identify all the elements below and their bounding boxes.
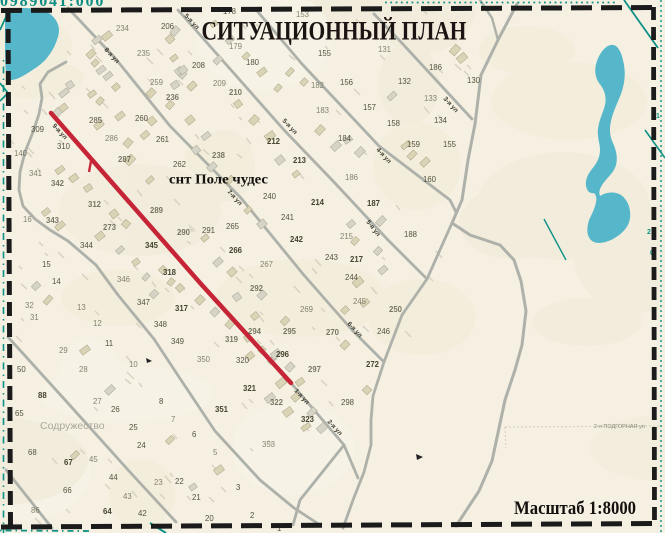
svg-text:23: 23 xyxy=(154,478,163,487)
svg-text:260: 260 xyxy=(135,114,149,123)
svg-text:246: 246 xyxy=(377,327,390,336)
svg-text:321: 321 xyxy=(243,384,257,393)
svg-text:133: 133 xyxy=(424,94,437,103)
svg-text:243: 243 xyxy=(325,253,338,262)
svg-text:341: 341 xyxy=(29,169,42,178)
svg-text:312: 312 xyxy=(88,200,102,209)
svg-text:323: 323 xyxy=(301,415,315,424)
svg-text:242: 242 xyxy=(290,235,304,244)
svg-text:269: 269 xyxy=(300,305,313,314)
svg-text:345: 345 xyxy=(145,241,159,250)
svg-text:214: 214 xyxy=(311,198,325,207)
svg-text:8: 8 xyxy=(159,397,163,406)
svg-text:273: 273 xyxy=(103,223,117,232)
svg-text:285: 285 xyxy=(89,116,103,125)
svg-text:272: 272 xyxy=(366,360,380,369)
svg-text:182: 182 xyxy=(311,81,324,90)
svg-text:СИТУАЦИОННЫЙ ПЛАН: СИТУАЦИОННЫЙ ПЛАН xyxy=(202,17,467,46)
svg-text:206: 206 xyxy=(161,22,174,31)
svg-text:287: 287 xyxy=(118,155,131,164)
svg-text:21: 21 xyxy=(192,493,201,502)
svg-text:64: 64 xyxy=(103,507,112,516)
svg-text:270: 270 xyxy=(326,328,340,337)
svg-text:68: 68 xyxy=(28,448,37,457)
svg-text:24: 24 xyxy=(137,441,146,450)
svg-text:157: 157 xyxy=(363,103,376,112)
svg-text:208: 208 xyxy=(192,61,205,70)
svg-text:3: 3 xyxy=(236,483,240,492)
svg-text:261: 261 xyxy=(156,135,169,144)
svg-text:212: 212 xyxy=(267,137,281,146)
svg-text:318: 318 xyxy=(163,268,177,277)
svg-text:353: 353 xyxy=(262,440,275,449)
svg-text:22: 22 xyxy=(175,477,184,486)
svg-text:27: 27 xyxy=(93,397,102,406)
svg-text:156: 156 xyxy=(340,78,353,87)
svg-text:240: 240 xyxy=(263,192,277,201)
svg-text:14: 14 xyxy=(52,277,61,286)
svg-text:265: 265 xyxy=(226,222,240,231)
svg-text:2-я ПОДГОРНАЯ ул: 2-я ПОДГОРНАЯ ул xyxy=(594,424,645,430)
svg-text:50: 50 xyxy=(17,365,26,374)
svg-text:снт Поле чудес: снт Поле чудес xyxy=(169,172,268,187)
svg-text:187: 187 xyxy=(367,199,380,208)
svg-text:241: 241 xyxy=(281,213,294,222)
svg-text:347: 347 xyxy=(137,298,150,307)
svg-text:245: 245 xyxy=(353,297,367,306)
svg-text:290: 290 xyxy=(177,228,191,237)
svg-text:131: 131 xyxy=(378,45,391,54)
svg-text:88: 88 xyxy=(38,391,47,400)
svg-text:5: 5 xyxy=(213,448,218,457)
svg-text:322: 322 xyxy=(270,398,284,407)
svg-text:160: 160 xyxy=(423,175,437,184)
svg-text:1: 1 xyxy=(656,113,660,120)
svg-text:309: 309 xyxy=(31,125,44,134)
svg-text:215: 215 xyxy=(340,232,354,241)
svg-text:Масштаб 1:8000: Масштаб 1:8000 xyxy=(514,498,636,519)
svg-text:180: 180 xyxy=(246,58,260,67)
svg-text:86: 86 xyxy=(31,506,40,515)
svg-text:295: 295 xyxy=(283,327,297,336)
svg-text:210: 210 xyxy=(229,88,243,97)
svg-text:11: 11 xyxy=(105,339,113,348)
svg-text:286: 286 xyxy=(105,134,118,143)
svg-text:130: 130 xyxy=(467,76,481,85)
svg-text:234: 234 xyxy=(116,24,130,33)
svg-text:16: 16 xyxy=(23,215,32,224)
svg-text:28: 28 xyxy=(79,365,88,374)
svg-text:45: 45 xyxy=(89,455,98,464)
svg-text:159: 159 xyxy=(407,140,420,149)
svg-text:294: 294 xyxy=(248,327,262,336)
svg-text:351: 351 xyxy=(215,405,229,414)
svg-text:250: 250 xyxy=(389,305,403,314)
svg-text:32: 32 xyxy=(25,301,34,310)
svg-text:29: 29 xyxy=(59,346,68,355)
svg-text:317: 317 xyxy=(175,304,188,313)
svg-text:266: 266 xyxy=(229,246,243,255)
svg-text:346: 346 xyxy=(117,275,130,284)
svg-text:20: 20 xyxy=(205,514,214,523)
svg-text:320: 320 xyxy=(236,356,250,365)
svg-text:310: 310 xyxy=(57,142,71,151)
svg-text:134: 134 xyxy=(434,116,448,125)
svg-text:10: 10 xyxy=(129,360,138,369)
svg-text:217: 217 xyxy=(350,255,363,264)
svg-text:344: 344 xyxy=(80,241,94,250)
svg-text:155: 155 xyxy=(318,49,332,58)
svg-text:12: 12 xyxy=(93,319,102,328)
svg-text:15: 15 xyxy=(42,260,51,269)
svg-text:209: 209 xyxy=(213,79,226,88)
svg-text:343: 343 xyxy=(46,216,60,225)
svg-text:66: 66 xyxy=(63,486,72,495)
svg-text:2: 2 xyxy=(647,229,651,236)
svg-text:213: 213 xyxy=(293,156,307,165)
svg-text:132: 132 xyxy=(398,77,411,86)
svg-text:183: 183 xyxy=(316,106,329,115)
svg-text:319: 319 xyxy=(225,335,239,344)
svg-text:140: 140 xyxy=(14,149,28,158)
svg-text:235: 235 xyxy=(137,49,151,58)
svg-text:44: 44 xyxy=(109,473,118,482)
svg-text:43: 43 xyxy=(123,492,132,501)
svg-text:Содружество: Содружество xyxy=(40,420,105,432)
svg-text:42: 42 xyxy=(138,509,147,518)
svg-text:155: 155 xyxy=(443,140,457,149)
svg-text:158: 158 xyxy=(387,119,400,128)
svg-text:349: 349 xyxy=(171,337,184,346)
svg-text:350: 350 xyxy=(197,355,211,364)
svg-text:262: 262 xyxy=(173,160,186,169)
svg-text:296: 296 xyxy=(276,350,290,359)
svg-text:259: 259 xyxy=(150,78,163,87)
svg-text:267: 267 xyxy=(260,260,273,269)
svg-text:291: 291 xyxy=(202,226,215,235)
svg-text:186: 186 xyxy=(429,63,442,72)
svg-text:67: 67 xyxy=(64,458,73,467)
svg-text:342: 342 xyxy=(51,179,65,188)
svg-text:31: 31 xyxy=(30,313,39,322)
svg-text:25: 25 xyxy=(129,423,138,432)
svg-text:65: 65 xyxy=(15,409,24,418)
svg-text:26: 26 xyxy=(111,405,120,414)
svg-text:297: 297 xyxy=(308,365,321,374)
svg-text:184: 184 xyxy=(338,134,352,143)
svg-text:6: 6 xyxy=(192,430,196,439)
svg-text:292: 292 xyxy=(250,284,264,293)
svg-text:7: 7 xyxy=(171,415,175,424)
svg-text:13: 13 xyxy=(77,303,86,312)
svg-text:298: 298 xyxy=(341,398,354,407)
svg-text:186: 186 xyxy=(345,173,358,182)
svg-text:348: 348 xyxy=(154,320,167,329)
svg-text:236: 236 xyxy=(166,93,180,102)
svg-text:289: 289 xyxy=(150,206,164,215)
svg-text:238: 238 xyxy=(212,151,226,160)
svg-text:2: 2 xyxy=(250,511,254,520)
svg-text:188: 188 xyxy=(404,230,417,239)
svg-text:244: 244 xyxy=(345,273,359,282)
